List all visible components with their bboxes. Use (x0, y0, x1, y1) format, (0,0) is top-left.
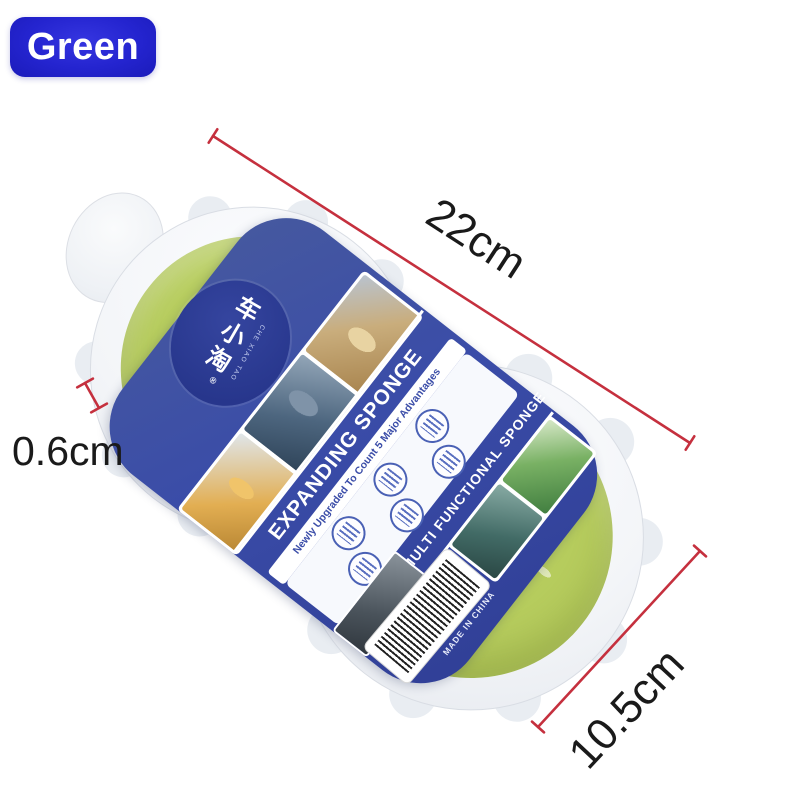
registered-mark: ® (204, 374, 220, 392)
dimension-thickness-label: 0.6cm (12, 428, 122, 475)
product-photo-canvas: Green 22cm 10.5cm 0.6cm (0, 0, 800, 800)
variant-badge-label: Green (27, 26, 139, 69)
variant-badge: Green (10, 17, 156, 77)
